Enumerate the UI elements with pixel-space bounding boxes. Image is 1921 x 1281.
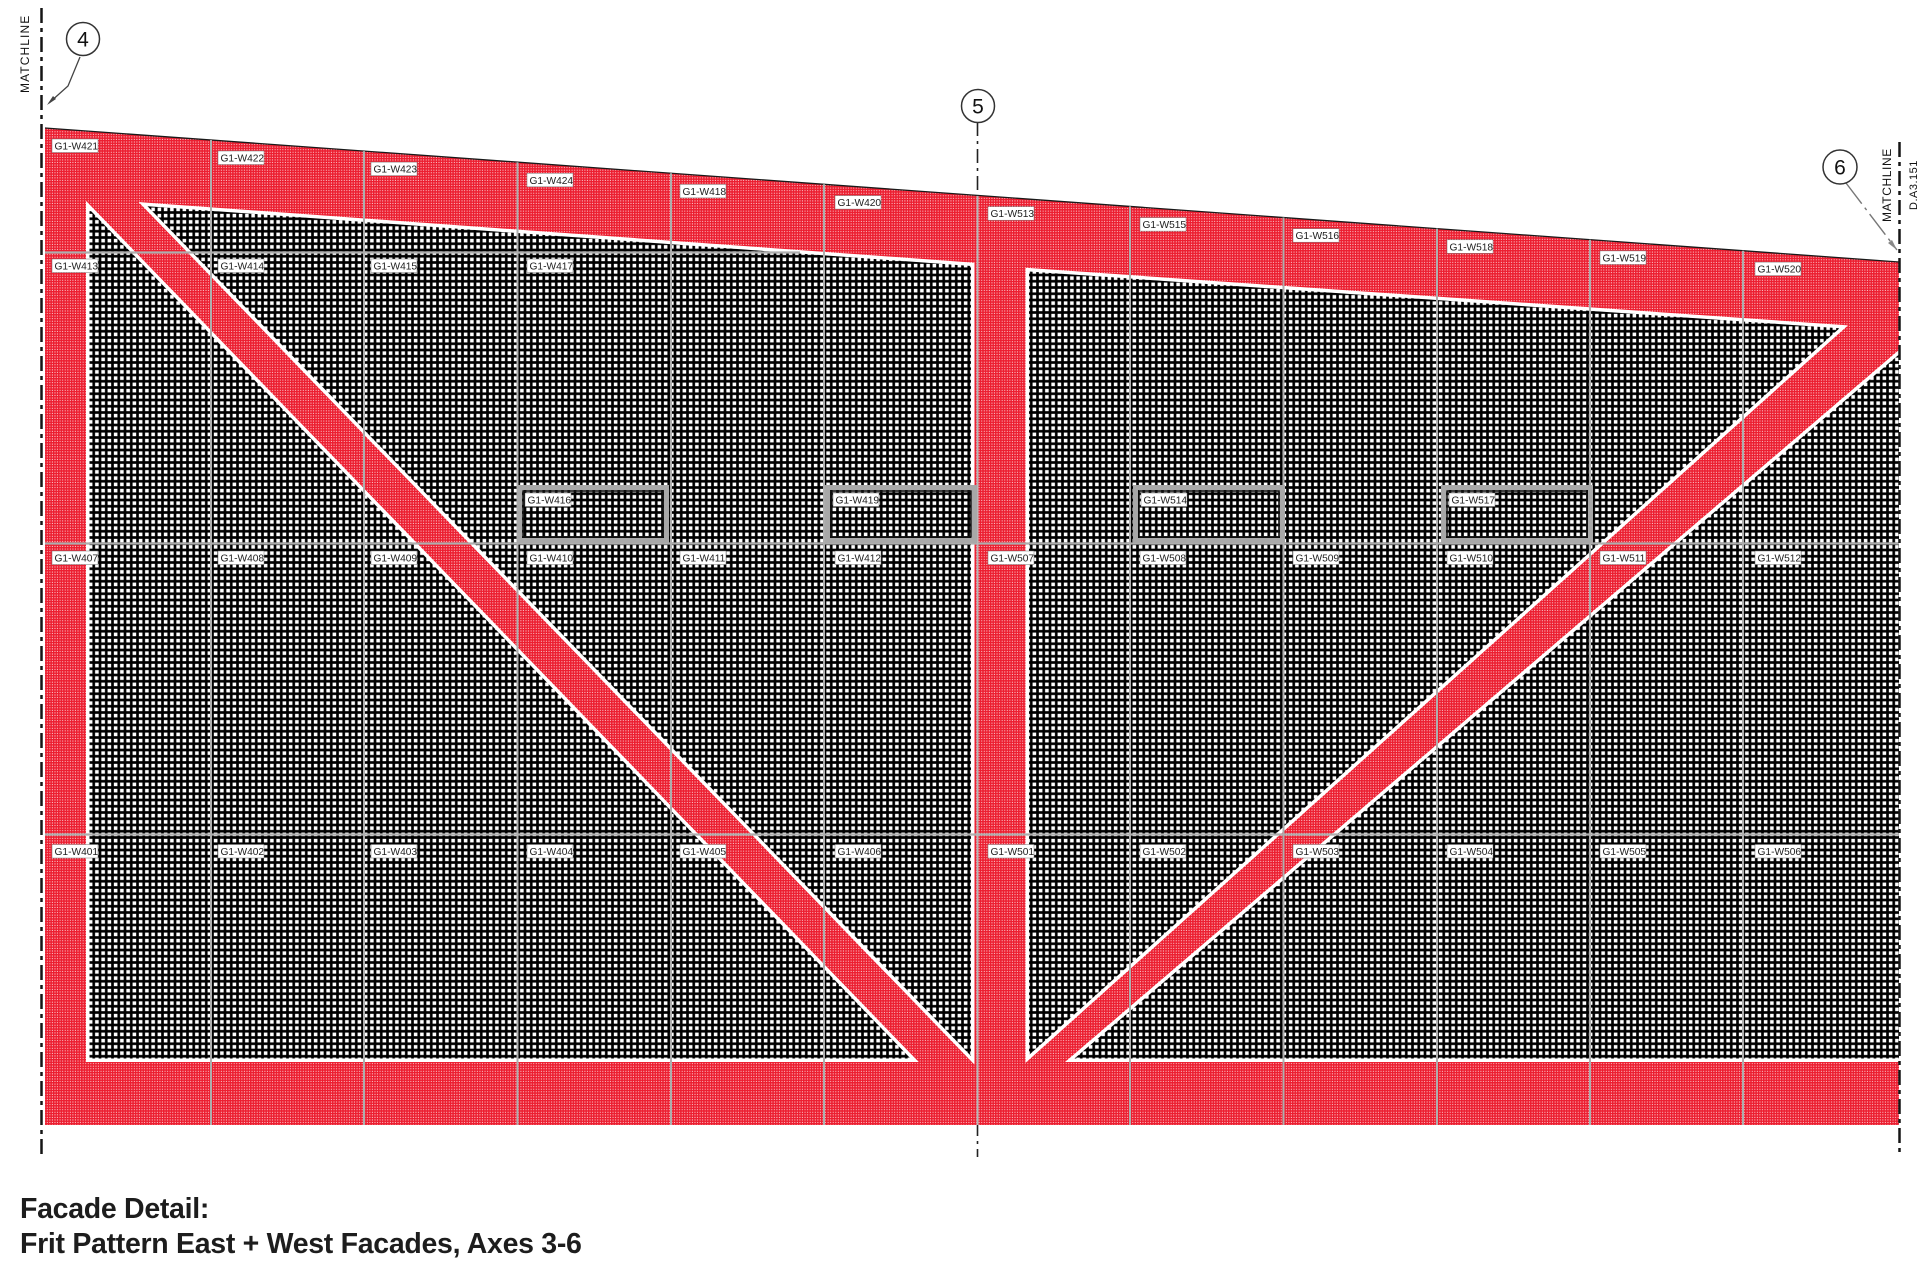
svg-text:G1-W421: G1-W421 [55,142,99,153]
svg-text:G1-W404: G1-W404 [530,847,574,858]
svg-text:G1-W415: G1-W415 [374,262,418,273]
svg-text:G1-W515: G1-W515 [1143,220,1187,231]
svg-text:G1-W420: G1-W420 [838,198,882,209]
svg-text:G1-W516: G1-W516 [1296,231,1340,242]
svg-text:G1-W503: G1-W503 [1296,847,1340,858]
svg-text:G1-W520: G1-W520 [1758,265,1802,276]
svg-text:G1-W519: G1-W519 [1603,253,1647,264]
svg-text:G1-W510: G1-W510 [1450,554,1494,565]
svg-text:G1-W403: G1-W403 [374,847,418,858]
svg-text:G1-W407: G1-W407 [55,554,99,565]
svg-text:G1-W402: G1-W402 [221,847,265,858]
svg-text:G1-W502: G1-W502 [1143,847,1187,858]
svg-text:G1-W422: G1-W422 [221,154,265,165]
svg-text:G1-W507: G1-W507 [991,554,1035,565]
svg-text:6: 6 [1834,157,1846,180]
svg-text:G1-W518: G1-W518 [1450,242,1494,253]
svg-text:G1-W423: G1-W423 [374,165,418,176]
svg-text:Frit Pattern East + West Facad: Frit Pattern East + West Facades, Axes 3… [20,1228,582,1260]
svg-text:G1-W514: G1-W514 [1144,496,1188,507]
svg-text:D.A3.151: D.A3.151 [1908,160,1920,210]
svg-text:G1-W513: G1-W513 [991,209,1035,220]
svg-text:G1-W405: G1-W405 [683,847,727,858]
svg-text:G1-W401: G1-W401 [55,847,99,858]
svg-text:G1-W509: G1-W509 [1296,554,1340,565]
svg-text:G1-W417: G1-W417 [530,262,574,273]
svg-text:G1-W414: G1-W414 [221,262,265,273]
svg-text:G1-W517: G1-W517 [1452,496,1496,507]
svg-text:G1-W412: G1-W412 [838,554,882,565]
svg-text:4: 4 [77,29,89,52]
svg-text:G1-W512: G1-W512 [1758,554,1802,565]
svg-text:G1-W419: G1-W419 [836,496,880,507]
svg-text:G1-W416: G1-W416 [528,496,572,507]
svg-text:G1-W511: G1-W511 [1603,554,1646,565]
svg-text:G1-W424: G1-W424 [530,176,574,187]
svg-text:G1-W413: G1-W413 [55,262,99,273]
svg-text:MATCHLINE: MATCHLINE [1880,148,1894,222]
svg-text:G1-W409: G1-W409 [374,554,418,565]
svg-text:G1-W410: G1-W410 [530,554,574,565]
svg-text:G1-W508: G1-W508 [1143,554,1187,565]
svg-text:G1-W501: G1-W501 [991,847,1035,858]
svg-text:MATCHLINE: MATCHLINE [18,15,32,93]
svg-text:Facade Detail:: Facade Detail: [20,1193,209,1225]
svg-text:G1-W418: G1-W418 [683,187,727,198]
svg-text:G1-W406: G1-W406 [838,847,882,858]
svg-text:G1-W506: G1-W506 [1758,847,1802,858]
svg-text:G1-W408: G1-W408 [221,554,265,565]
svg-text:G1-W411: G1-W411 [683,554,726,565]
svg-text:G1-W504: G1-W504 [1450,847,1494,858]
svg-text:G1-W505: G1-W505 [1603,847,1647,858]
svg-text:5: 5 [972,96,984,119]
